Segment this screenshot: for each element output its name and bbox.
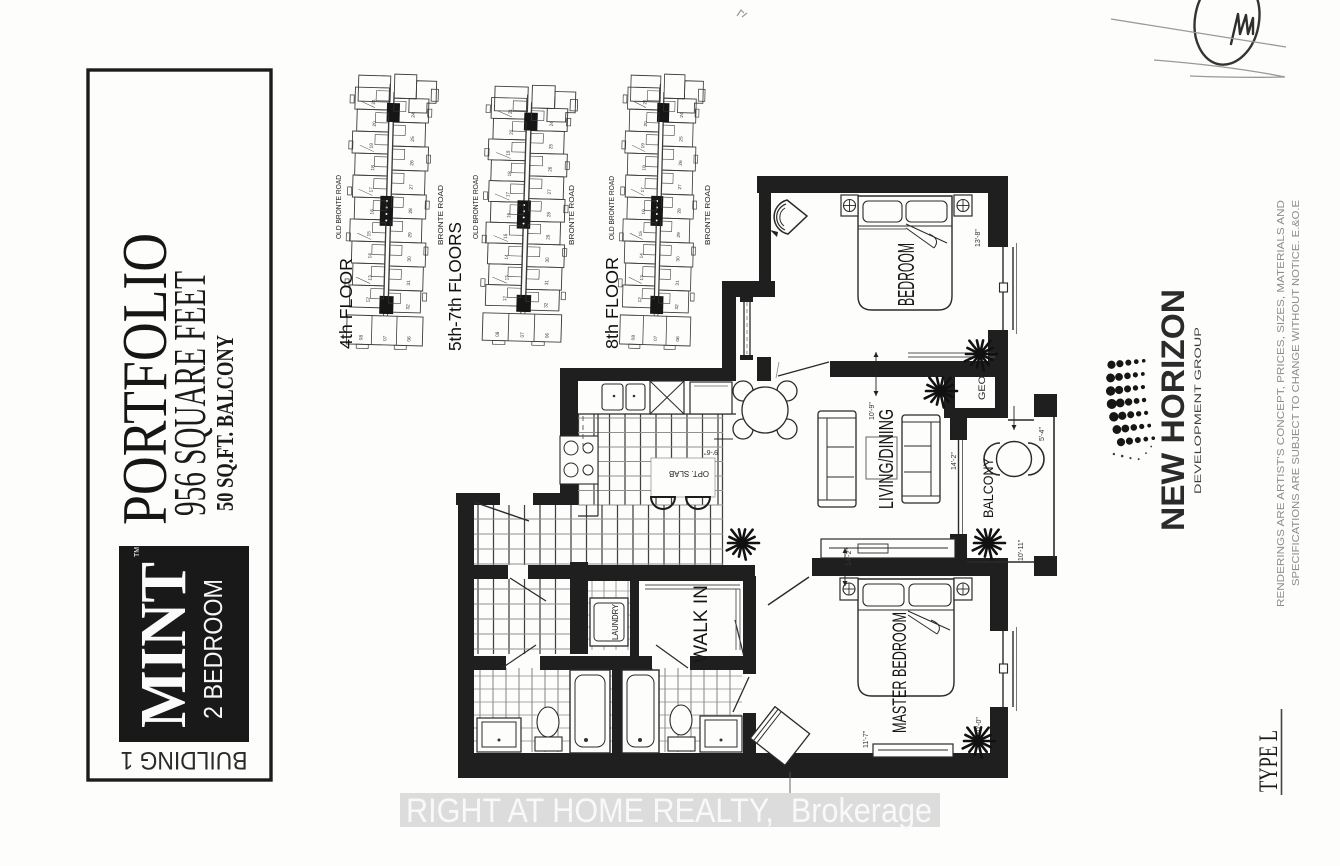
svg-text:06: 06 — [675, 336, 680, 342]
svg-text:SPECIFICATIONS ARE SUBJECT TO: SPECIFICATIONS ARE SUBJECT TO CHANGE WIT… — [1290, 200, 1302, 586]
svg-text:32: 32 — [543, 302, 549, 308]
svg-text:WALK IN: WALK IN — [690, 585, 712, 663]
svg-text:13: 13 — [639, 275, 644, 281]
svg-text:LAUNDRY: LAUNDRY — [611, 603, 620, 640]
svg-text:25: 25 — [548, 144, 554, 150]
svg-text:06: 06 — [406, 336, 412, 342]
svg-text:07: 07 — [653, 335, 658, 341]
svg-text:14'-2": 14'-2" — [846, 548, 853, 566]
svg-text:13'-8": 13'-8" — [975, 229, 982, 247]
svg-text:30: 30 — [545, 257, 551, 263]
svg-text:4th FLOOR: 4th FLOOR — [336, 258, 356, 349]
svg-text:TM: TM — [134, 547, 141, 557]
svg-text:17: 17 — [640, 187, 645, 193]
svg-text:NEW HORIZON: NEW HORIZON — [1155, 289, 1191, 531]
svg-text:27: 27 — [547, 189, 553, 195]
svg-text:OPT. SLAB: OPT. SLAB — [669, 469, 709, 479]
svg-text:26: 26 — [678, 160, 683, 166]
svg-text:OLD BRONTE ROAD: OLD BRONTE ROAD — [334, 174, 343, 239]
svg-text:OLD BRONTE ROAD: OLD BRONTE ROAD — [607, 175, 616, 240]
svg-text:RENDERINGS ARE ARTIST'S CONCEP: RENDERINGS ARE ARTIST'S CONCEPT, PRICES,… — [1275, 200, 1287, 607]
svg-text:14: 14 — [639, 253, 644, 259]
svg-text:29: 29 — [676, 232, 681, 238]
svg-text:21: 21 — [642, 99, 647, 105]
svg-text:31: 31 — [406, 280, 412, 286]
svg-text:08: 08 — [495, 331, 501, 337]
svg-text:30: 30 — [407, 256, 413, 262]
svg-text:BEDROOM: BEDROOM — [893, 243, 919, 306]
svg-text:MINT: MINT — [127, 562, 200, 728]
svg-text:956 SQUARE FEET: 956 SQUARE FEET — [165, 271, 215, 516]
svg-text:OLD BRONTE ROAD: OLD BRONTE ROAD — [471, 174, 480, 239]
svg-text:18: 18 — [507, 171, 513, 177]
svg-text:26: 26 — [409, 160, 415, 166]
svg-text:15: 15 — [638, 231, 643, 237]
svg-text:BRONTE ROAD: BRONTE ROAD — [436, 184, 445, 245]
svg-text:24: 24 — [411, 112, 417, 118]
svg-text:08: 08 — [631, 334, 636, 340]
svg-text:GEO: GEO — [977, 376, 988, 400]
svg-text:12: 12 — [365, 297, 371, 303]
svg-text:18: 18 — [642, 165, 647, 171]
svg-text:16: 16 — [369, 209, 375, 215]
svg-text:25: 25 — [410, 136, 416, 142]
svg-text:15: 15 — [366, 231, 372, 237]
svg-text:BRONTE ROAD: BRONTE ROAD — [567, 184, 576, 245]
svg-text:2 BEDROOM: 2 BEDROOM — [198, 579, 228, 719]
svg-text:29: 29 — [407, 232, 413, 238]
svg-text:5'-4": 5'-4" — [1039, 427, 1046, 441]
svg-text:28: 28 — [408, 208, 414, 214]
svg-text:10'-9": 10'-9" — [869, 402, 876, 420]
svg-text:28: 28 — [546, 212, 552, 218]
svg-text:21: 21 — [371, 99, 377, 105]
svg-text:31: 31 — [675, 280, 680, 286]
svg-text:17: 17 — [369, 187, 375, 193]
svg-text:19: 19 — [505, 150, 511, 156]
svg-text:16: 16 — [641, 209, 646, 215]
svg-text:29: 29 — [545, 234, 551, 240]
svg-text:LIVING/DINING: LIVING/DINING — [876, 409, 898, 509]
svg-text:DEVELOPMENT GROUP: DEVELOPMENT GROUP — [1193, 327, 1204, 494]
svg-text:06: 06 — [544, 333, 550, 339]
svg-text:07: 07 — [520, 332, 526, 338]
svg-text:13: 13 — [504, 275, 510, 281]
svg-text:12: 12 — [502, 296, 508, 302]
svg-text:32: 32 — [405, 304, 411, 310]
svg-text:27: 27 — [677, 184, 682, 190]
svg-text:20: 20 — [372, 121, 378, 127]
svg-text:25: 25 — [679, 136, 684, 142]
svg-text:MASTER BEDROOM: MASTER BEDROOM — [890, 612, 911, 733]
svg-text:31: 31 — [544, 280, 550, 286]
svg-text:30: 30 — [675, 256, 680, 262]
svg-text:50 SQ.FT. BALCONY: 50 SQ.FT. BALCONY — [213, 335, 239, 511]
svg-text:07: 07 — [382, 335, 388, 341]
svg-text:20: 20 — [509, 129, 515, 135]
svg-text:14: 14 — [504, 254, 510, 260]
svg-text:15: 15 — [503, 233, 509, 239]
svg-text:14'-2": 14'-2" — [951, 452, 958, 470]
svg-text:24: 24 — [679, 112, 684, 118]
svg-text:32: 32 — [674, 304, 679, 310]
svg-text:11'-7": 11'-7" — [863, 730, 870, 748]
svg-text:10'-11": 10'-11" — [1018, 539, 1025, 561]
svg-text:28: 28 — [677, 208, 682, 214]
svg-text:5th-7th FLOORS: 5th-7th FLOORS — [445, 222, 465, 351]
svg-text:19: 19 — [640, 143, 645, 149]
svg-text:08: 08 — [358, 335, 364, 341]
svg-text:RIGHT AT HOME REALTY, Brokera: RIGHT AT HOME REALTY, Brokerage — [406, 792, 932, 830]
svg-text:9'-6": 9'-6" — [704, 448, 718, 455]
svg-text:14: 14 — [367, 253, 373, 259]
svg-text:BRONTE ROAD: BRONTE ROAD — [703, 184, 712, 245]
svg-text:13: 13 — [368, 275, 374, 281]
svg-text:16: 16 — [506, 213, 512, 219]
svg-text:BUILDING 1: BUILDING 1 — [121, 746, 248, 774]
svg-text:8th FLOOR: 8th FLOOR — [602, 257, 622, 349]
svg-text:BALCONY: BALCONY — [980, 457, 996, 518]
svg-text:20: 20 — [643, 121, 648, 127]
svg-text:18: 18 — [370, 165, 376, 171]
svg-text:26: 26 — [547, 166, 553, 172]
svg-text:17: 17 — [505, 192, 511, 198]
svg-text:24: 24 — [549, 121, 555, 127]
svg-text:27: 27 — [409, 184, 415, 190]
svg-text:12: 12 — [637, 297, 642, 303]
svg-text:21: 21 — [508, 109, 514, 115]
svg-text:TYPE L: TYPE L — [1254, 730, 1283, 792]
svg-text:19: 19 — [369, 143, 375, 149]
